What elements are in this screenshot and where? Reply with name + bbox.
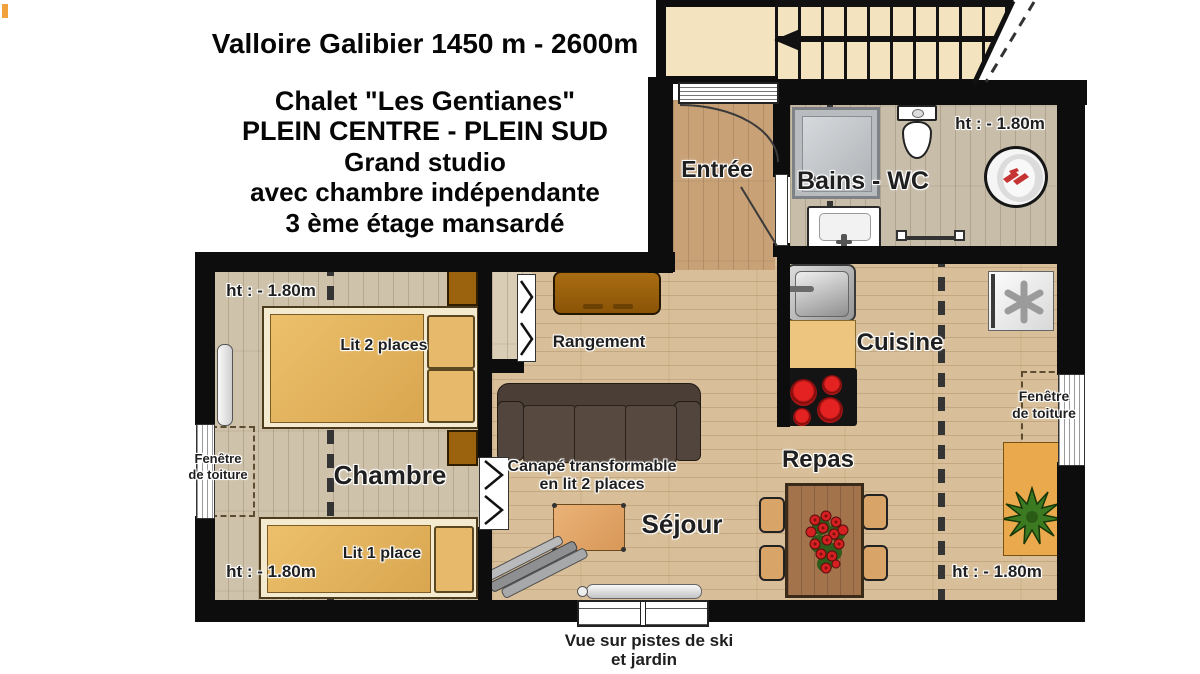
wall — [775, 80, 1087, 105]
washing-machine — [984, 146, 1048, 208]
sofa-label-line2: en lit 2 places — [502, 476, 682, 494]
chalet-name: Chalet "Les Gentianes" — [170, 86, 680, 117]
sofa-bed — [497, 383, 701, 463]
dining-chair — [862, 494, 888, 530]
living-room-window — [577, 600, 709, 627]
burner — [790, 379, 817, 406]
sofa-cushion — [625, 405, 677, 463]
toilet-button — [912, 109, 924, 118]
height-limit-label: ht : - 1.80m — [218, 562, 324, 582]
wall — [777, 253, 790, 427]
rail-bar — [902, 236, 962, 240]
height-limit-label: ht : - 1.80m — [947, 114, 1053, 134]
wardrobe — [553, 271, 661, 315]
sofa-cushion — [523, 405, 576, 463]
wardrobe-handle — [613, 304, 633, 309]
studio-line: Grand studio — [170, 147, 680, 178]
burner — [793, 408, 811, 426]
height-limit-label: ht : - 1.80m — [944, 562, 1050, 582]
toilet-bowl — [902, 121, 932, 159]
rail-hook — [896, 230, 907, 241]
flower-bouquet — [799, 506, 855, 580]
pillow — [427, 369, 475, 423]
bedroom-line: avec chambre indépendante — [170, 177, 680, 208]
view-label-line1: Vue sur pistes de ski — [564, 631, 734, 651]
stair-landing — [666, 6, 775, 78]
roof-window-label-right-line2: de toiture — [1004, 405, 1084, 421]
wall — [780, 246, 1058, 264]
table-corner — [621, 503, 626, 508]
room-label-cuisine: Cuisine — [845, 329, 955, 357]
closet-folding-door — [517, 274, 536, 362]
floor-plan: Valloire Galibier 1450 m - 2600m Chalet … — [0, 0, 1200, 674]
entry-floor — [673, 100, 775, 270]
wall — [195, 600, 579, 622]
stair-mid-rail — [775, 36, 1025, 42]
sofa-label-line1: Canapé transformable — [502, 458, 682, 476]
burner — [817, 397, 843, 423]
wall — [195, 252, 675, 272]
radiator-valve — [577, 586, 588, 597]
pillow — [434, 526, 474, 593]
roof-window-label-left-line2: de toiture — [180, 467, 256, 482]
rail-hook — [954, 230, 965, 241]
room-label-chambre: Chambre — [325, 460, 455, 491]
resort-title: Valloire Galibier 1450 m - 2600m — [170, 28, 680, 60]
snowflake-icon — [989, 272, 1055, 332]
window-divider — [640, 602, 646, 625]
room-label-bains: Bains - WC — [783, 167, 943, 196]
room-label-entree: Entrée — [662, 156, 772, 183]
radiator-living — [586, 584, 702, 599]
wall — [1057, 85, 1085, 375]
wall — [656, 0, 775, 7]
room-label-rangement: Rangement — [543, 332, 655, 352]
sink-basin — [795, 271, 849, 317]
burner — [822, 375, 842, 395]
room-label-sejour: Séjour — [622, 509, 742, 540]
height-limit-label: ht : - 1.80m — [218, 281, 324, 301]
table-corner — [621, 547, 626, 552]
double-bed — [262, 306, 479, 429]
location-line: PLEIN CENTRE - PLEIN SUD — [170, 116, 680, 147]
roof-window-label-left-line1: Fenêtre — [180, 451, 256, 466]
room-label-repas: Repas — [768, 446, 868, 474]
chevron-icon — [518, 275, 535, 361]
staircase — [775, 0, 1025, 86]
toilet — [897, 105, 937, 161]
freezer — [988, 271, 1054, 331]
wall — [195, 253, 215, 425]
height-limit-line-kitchen — [938, 253, 945, 612]
entrance-door — [678, 82, 779, 104]
radiator-bedroom — [217, 344, 233, 426]
scan-artifact — [2, 4, 8, 18]
table-corner — [552, 503, 557, 508]
dining-chair — [862, 545, 888, 581]
washer-logo — [1001, 167, 1031, 187]
title-block: Valloire Galibier 1450 m - 2600m Chalet … — [170, 20, 680, 250]
dining-chair — [759, 497, 785, 533]
kitchen-sink — [786, 264, 856, 322]
cooktop — [783, 368, 857, 426]
sofa-cushion — [574, 405, 627, 463]
sofa-arm — [497, 401, 524, 461]
single-bed-label: Lit 1 place — [325, 545, 439, 563]
wall — [478, 527, 492, 618]
wall — [709, 600, 1085, 622]
wall — [478, 252, 492, 458]
dining-chair — [759, 545, 785, 581]
double-bed-mattress — [270, 314, 424, 423]
wardrobe-handle — [583, 304, 603, 309]
towel-rail — [896, 227, 968, 245]
faucet-cross — [836, 240, 852, 244]
sofa-arm — [674, 401, 701, 461]
view-label-line2: et jardin — [564, 650, 724, 670]
bathroom-sink — [807, 206, 881, 250]
wall — [1057, 462, 1085, 622]
nightstand — [447, 270, 478, 306]
roof-window-label-right-line1: Fenêtre — [1004, 388, 1084, 404]
plant-icon — [1004, 486, 1060, 548]
floor-line: 3 ème étage mansardé — [170, 208, 680, 239]
double-bed-label: Lit 2 places — [327, 337, 441, 355]
